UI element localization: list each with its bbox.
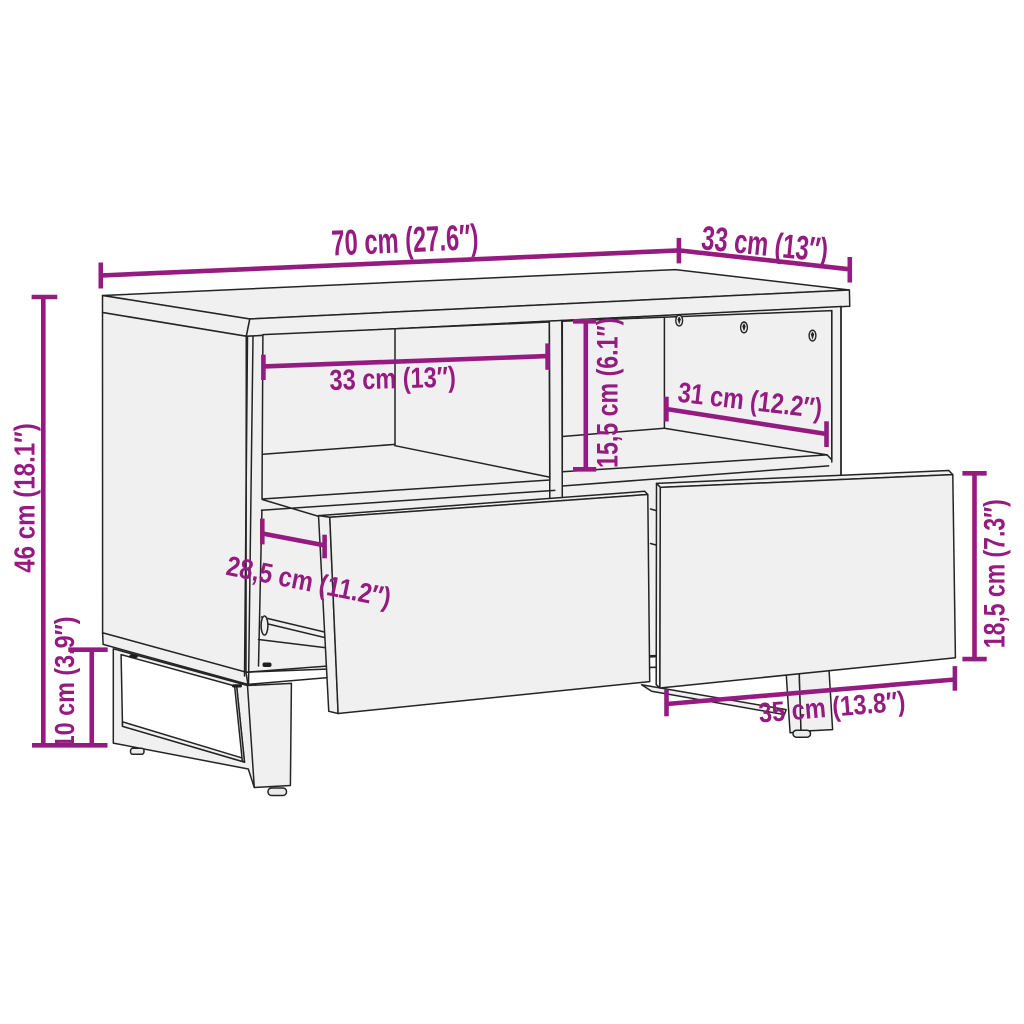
svg-text:18,5 cm (7.3″): 18,5 cm (7.3″) bbox=[979, 499, 1012, 648]
svg-text:10 cm (3.9″): 10 cm (3.9″) bbox=[49, 616, 80, 748]
svg-text:70 cm (27.6″): 70 cm (27.6″) bbox=[331, 216, 480, 263]
svg-text:15,5 cm (6.1″): 15,5 cm (6.1″) bbox=[592, 318, 625, 468]
svg-text:46 cm (18.1″): 46 cm (18.1″) bbox=[10, 423, 42, 573]
svg-text:33 cm (13″): 33 cm (13″) bbox=[329, 362, 456, 397]
